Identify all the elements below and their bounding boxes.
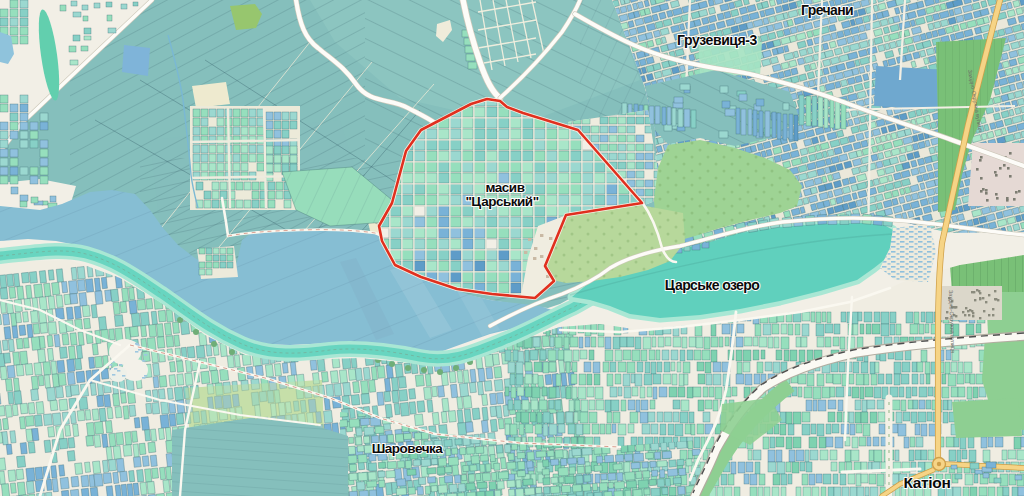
svg-text:Гречани: Гречани <box>801 2 853 18</box>
svg-text:Царське озеро: Царське озеро <box>665 277 759 293</box>
svg-text:Шаровечка: Шаровечка <box>372 441 443 456</box>
svg-text:"Царський": "Царський" <box>465 194 538 209</box>
svg-text:Грузевиця-3: Грузевиця-3 <box>677 32 758 48</box>
svg-text:Катіон: Катіон <box>903 474 950 491</box>
svg-text:масив: масив <box>486 180 525 195</box>
